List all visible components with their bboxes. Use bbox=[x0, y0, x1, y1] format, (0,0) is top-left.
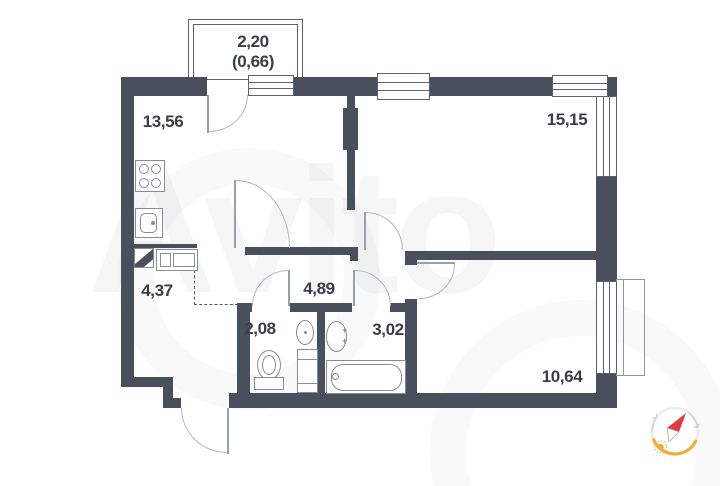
zone-boundary-dashed bbox=[194, 270, 195, 305]
balcony-door-arc bbox=[209, 95, 248, 132]
ledge-line bbox=[623, 280, 624, 375]
toilet-tank bbox=[254, 377, 284, 390]
toilet-icon bbox=[257, 350, 281, 380]
window-line bbox=[249, 88, 293, 89]
washer-line bbox=[298, 383, 317, 384]
window-line bbox=[378, 82, 429, 83]
wall bbox=[121, 377, 173, 387]
window-line bbox=[609, 97, 610, 176]
floor-plan-canvas: Avito bbox=[0, 0, 720, 486]
wall bbox=[596, 175, 617, 285]
washer-line bbox=[298, 359, 317, 360]
window-line bbox=[553, 89, 607, 90]
tap-mark: + bbox=[342, 337, 347, 346]
room-label-hallway: 4,37 bbox=[141, 281, 173, 301]
tap-mark: + bbox=[342, 326, 347, 335]
toilet-bowl-inner bbox=[262, 355, 276, 375]
wardrobe-section bbox=[173, 253, 195, 267]
wall bbox=[407, 251, 596, 260]
window bbox=[377, 73, 430, 100]
burner bbox=[151, 164, 161, 174]
zone-boundary-dashed bbox=[194, 304, 238, 305]
bathtub-icon bbox=[326, 360, 406, 394]
drain bbox=[151, 221, 155, 225]
room-label-balcony-reduced: (0,66) bbox=[232, 52, 274, 72]
balcony-window bbox=[248, 75, 294, 96]
burner bbox=[139, 164, 149, 174]
window-line bbox=[603, 282, 604, 373]
burner bbox=[151, 178, 161, 188]
wall bbox=[237, 303, 250, 395]
window-line bbox=[553, 83, 607, 84]
wall bbox=[293, 77, 377, 96]
drain bbox=[304, 331, 307, 334]
room-label-corridor: 4,89 bbox=[303, 279, 335, 299]
room-label-balcony: 2,20 bbox=[237, 32, 269, 52]
window bbox=[596, 281, 617, 374]
wall bbox=[430, 77, 552, 96]
room-label-kitchen-living: 13,56 bbox=[143, 112, 184, 132]
faucet bbox=[332, 373, 339, 380]
burner bbox=[139, 178, 149, 188]
wall bbox=[121, 77, 134, 378]
wardrobe-section bbox=[160, 253, 171, 267]
room-label-bathroom: 3,02 bbox=[372, 320, 404, 340]
wall bbox=[245, 247, 358, 255]
wall bbox=[343, 108, 358, 150]
wall bbox=[350, 252, 358, 261]
washing-machine-icon bbox=[297, 349, 318, 393]
compass-icon bbox=[645, 400, 705, 460]
entrance-door-arc bbox=[181, 408, 227, 453]
wall bbox=[317, 303, 325, 395]
toilet-door-leaf bbox=[288, 270, 290, 306]
vent-shaft-icon bbox=[134, 248, 154, 268]
french-balcony-ledge bbox=[616, 279, 645, 376]
room-label-toilet: 2,08 bbox=[244, 319, 276, 339]
bathtub-inner bbox=[331, 364, 402, 391]
corner-window-top bbox=[552, 75, 608, 97]
wardrobe-icon bbox=[156, 249, 198, 271]
corner-window-side bbox=[596, 96, 617, 177]
stove-icon bbox=[135, 160, 165, 192]
wall bbox=[405, 251, 417, 265]
wall bbox=[596, 373, 617, 408]
wall bbox=[229, 393, 596, 408]
kitchen-sink-icon bbox=[135, 208, 163, 238]
wc-sink-icon bbox=[296, 320, 314, 345]
wall bbox=[390, 303, 417, 312]
wall bbox=[163, 398, 181, 408]
room-label-living-room: 10,64 bbox=[542, 367, 583, 387]
wall bbox=[405, 299, 417, 395]
room-label-bedroom: 15,15 bbox=[547, 110, 588, 130]
vent-diagonal bbox=[134, 248, 154, 268]
window-line bbox=[378, 90, 429, 91]
window-line bbox=[609, 282, 610, 373]
window-line bbox=[603, 97, 604, 176]
window-line bbox=[249, 82, 293, 83]
entrance-door-leaf bbox=[227, 408, 229, 454]
